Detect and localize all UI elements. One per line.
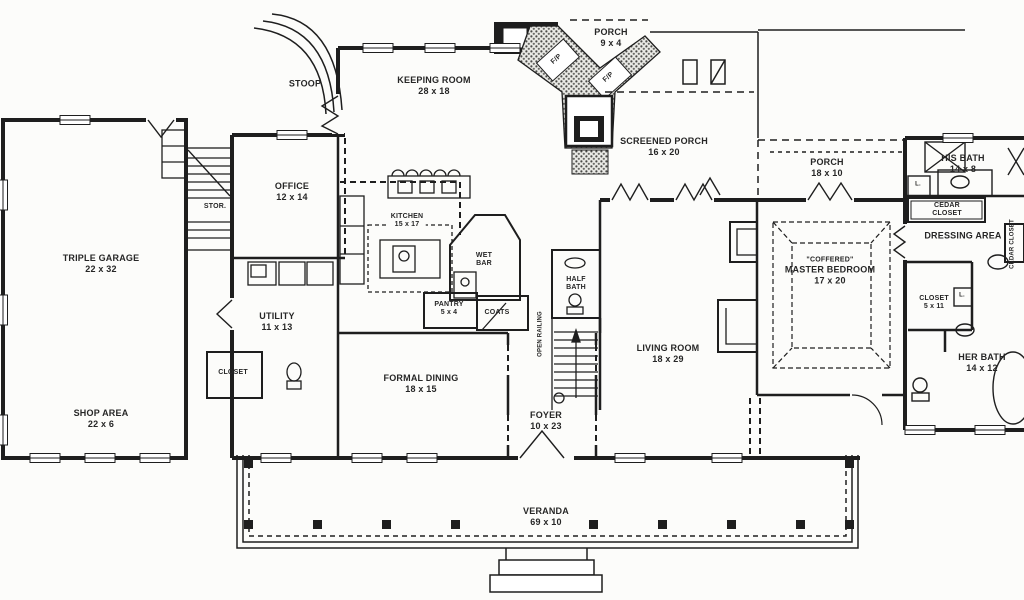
- room-name: HIS BATH: [941, 153, 984, 164]
- room-label-coats: COATS: [485, 309, 510, 317]
- room-name: LIVING ROOM: [637, 343, 700, 354]
- room-dims: 5 x 11: [919, 303, 949, 311]
- room-label-his-bath: HIS BATH14 x 8: [941, 153, 984, 176]
- room-name: HALF: [566, 276, 586, 284]
- room-dims: 28 x 18: [397, 86, 470, 97]
- linen-label-his-bath: L.: [915, 182, 921, 189]
- room-label-kitchen: KITCHEN15 x 17: [389, 213, 426, 229]
- master-door-swing: [852, 395, 882, 425]
- room-name: UTILITY: [259, 311, 294, 322]
- ceiling-note: "COFFERED": [785, 257, 875, 265]
- room-dims: 17 x 20: [785, 276, 875, 287]
- room-name: CEDAR CLOSET: [1010, 219, 1017, 269]
- room-dims: 22 x 32: [63, 264, 140, 275]
- room-label-storage: STOR.: [202, 203, 228, 211]
- room-name: PORCH: [594, 27, 628, 38]
- room-label-her-bath: HER BATH14 x 12: [958, 352, 1005, 375]
- room-label-porch-9x4: PORCH9 x 4: [594, 27, 628, 50]
- room-dims: 18 x 29: [637, 354, 700, 365]
- room-label-wet-bar: WETBAR: [476, 252, 492, 268]
- room-dims: 18 x 10: [810, 168, 844, 179]
- foyer-stairs: [552, 318, 600, 410]
- room-dims: 5 x 4: [434, 309, 463, 317]
- linen-label-closet: L.: [959, 293, 965, 300]
- living-builtins: [718, 222, 757, 352]
- back-stairs: [162, 130, 232, 250]
- room-dims: 10 x 23: [530, 421, 562, 432]
- room-label-closet-5x11: CLOSET5 x 11: [919, 295, 949, 311]
- room-label-screened-porch: SCREENED PORCH16 x 20: [620, 136, 708, 159]
- note-text: OPEN RAILING: [538, 311, 545, 357]
- note-text: L.: [959, 293, 965, 300]
- room-label-living-room: LIVING ROOM18 x 29: [637, 343, 700, 366]
- bath-fixtures: [908, 142, 1024, 424]
- stoop-steps: [254, 14, 342, 114]
- room-name: STOOP: [289, 78, 321, 89]
- room-name: KITCHEN: [391, 213, 424, 221]
- room-label-formal-dining: FORMAL DINING18 x 15: [384, 373, 459, 396]
- room-name: WET: [476, 252, 492, 260]
- room-dims: 15 x 17: [391, 221, 424, 229]
- room-name: SHOP AREA: [74, 408, 129, 419]
- room-dims: 14 x 12: [958, 363, 1005, 374]
- room-dims: 69 x 10: [523, 517, 569, 528]
- room-label-half-bath: HALFBATH: [566, 276, 586, 292]
- cased-openings: [340, 138, 760, 456]
- room-label-shop-area: SHOP AREA22 x 6: [74, 408, 129, 431]
- windows: [0, 44, 1005, 463]
- room-label-closet-utility: CLOSET: [218, 369, 248, 377]
- room-label-office: OFFICE12 x 14: [275, 181, 309, 204]
- room-dims: 14 x 8: [941, 164, 984, 175]
- room-label-keeping-room: KEEPING ROOM28 x 18: [397, 75, 470, 98]
- room-name: HER BATH: [958, 352, 1005, 363]
- railing-note: OPEN RAILING: [538, 311, 545, 357]
- room-label-porch-18x10: PORCH18 x 10: [810, 157, 844, 180]
- room-name: CLOSET: [218, 369, 248, 377]
- room-name: FORMAL DINING: [384, 373, 459, 384]
- room-dims: 18 x 15: [384, 384, 459, 395]
- room-label-master-bedroom: "COFFERED"MASTER BEDROOM17 x 20: [785, 257, 875, 288]
- room-name-2: BATH: [566, 284, 586, 292]
- room-name: FOYER: [530, 410, 562, 421]
- room-label-veranda: VERANDA69 x 10: [523, 506, 569, 529]
- room-dims: 11 x 13: [259, 322, 294, 333]
- floorplan-drawing: [0, 0, 1024, 600]
- room-name: SCREENED PORCH: [620, 136, 708, 147]
- room-label-cedar-closet-box: CEDARCLOSET: [932, 202, 962, 218]
- room-name: STOR.: [204, 203, 226, 211]
- room-name: OFFICE: [275, 181, 309, 192]
- room-name: VERANDA: [523, 506, 569, 517]
- room-dims: 16 x 20: [620, 147, 708, 158]
- room-name: MASTER BEDROOM: [785, 265, 875, 276]
- room-name: CLOSET: [919, 295, 949, 303]
- room-name: DRESSING AREA: [924, 230, 1001, 241]
- floor-plan: STOOP KEEPING ROOM28 x 18 PORCH9 x 4 SCR…: [0, 0, 1024, 600]
- room-dims: 22 x 6: [74, 419, 129, 430]
- room-label-dressing-area: DRESSING AREA: [924, 230, 1001, 241]
- room-label-cedar-closet-vertical: CEDAR CLOSET: [1010, 219, 1017, 269]
- room-name: CEDAR: [932, 202, 962, 210]
- room-label-pantry: PANTRY5 x 4: [432, 301, 465, 317]
- room-name: PANTRY: [434, 301, 463, 309]
- room-label-utility: UTILITY11 x 13: [259, 311, 294, 334]
- room-name-2: CLOSET: [932, 210, 962, 218]
- room-name: TRIPLE GARAGE: [63, 253, 140, 264]
- room-name: PORCH: [810, 157, 844, 168]
- coffered-ceiling: [773, 222, 890, 368]
- room-dims: 12 x 14: [275, 192, 309, 203]
- room-label-foyer: FOYER10 x 23: [530, 410, 562, 433]
- room-name-2: BAR: [476, 260, 492, 268]
- room-dims: 9 x 4: [594, 38, 628, 49]
- room-name: KEEPING ROOM: [397, 75, 470, 86]
- room-label-triple-garage: TRIPLE GARAGE22 x 32: [63, 253, 140, 276]
- note-text: L.: [915, 182, 921, 189]
- room-label-stoop: STOOP: [289, 78, 321, 89]
- room-name: COATS: [485, 309, 510, 317]
